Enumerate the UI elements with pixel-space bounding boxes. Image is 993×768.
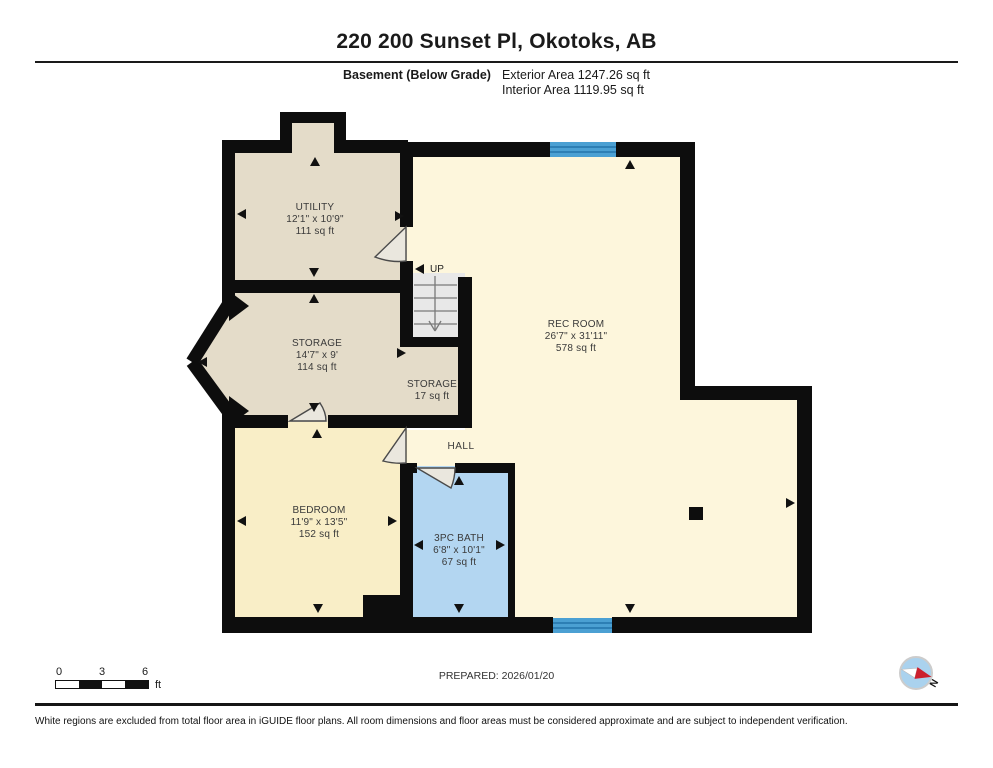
prepared-date: PREPARED: 2026/01/20 — [0, 670, 993, 682]
floorplan-page: 220 200 Sunset Pl, Okotoks, AB Basement … — [0, 0, 993, 768]
recroom-dims: 26'7" x 31'11" — [545, 331, 608, 342]
window-top — [550, 142, 616, 157]
bedroom-area: 152 sq ft — [299, 529, 339, 540]
recroom-name: REC ROOM — [548, 319, 605, 330]
storage-name: STORAGE — [292, 338, 342, 349]
understair-storage-area: 17 sq ft — [415, 391, 449, 402]
compass-n-label: N — [928, 678, 941, 690]
stairs-floor — [407, 273, 465, 347]
room-fills — [192, 118, 805, 625]
recroom-area: 578 sq ft — [556, 343, 596, 354]
understair-storage-name: STORAGE — [407, 379, 457, 390]
footer-divider — [35, 703, 958, 706]
utility-area: 111 sq ft — [296, 226, 335, 237]
storage-dims: 14'7" x 9' — [296, 350, 338, 361]
bath-dims: 6'8" x 10'1" — [433, 545, 485, 556]
floorplan-drawing: UTILITY 12'1" x 10'9" 111 sq ft STORAGE … — [0, 0, 993, 768]
bedroom-dims: 11'9" x 13'5" — [291, 517, 348, 528]
bath-name: 3PC BATH — [434, 533, 484, 544]
bath-area: 67 sq ft — [442, 557, 476, 568]
utility-name: UTILITY — [296, 202, 335, 213]
utility-dims: 12'1" x 10'9" — [286, 214, 344, 225]
storage-area: 114 sq ft — [297, 362, 336, 373]
compass-icon: N — [894, 652, 944, 700]
footer-disclaimer: White regions are excluded from total fl… — [35, 716, 958, 727]
window-bottom — [553, 618, 612, 633]
support-post — [689, 507, 703, 520]
stairs-up-label: UP — [430, 264, 444, 275]
hall-label: HALL — [447, 441, 474, 452]
bedroom-name: BEDROOM — [292, 505, 345, 516]
